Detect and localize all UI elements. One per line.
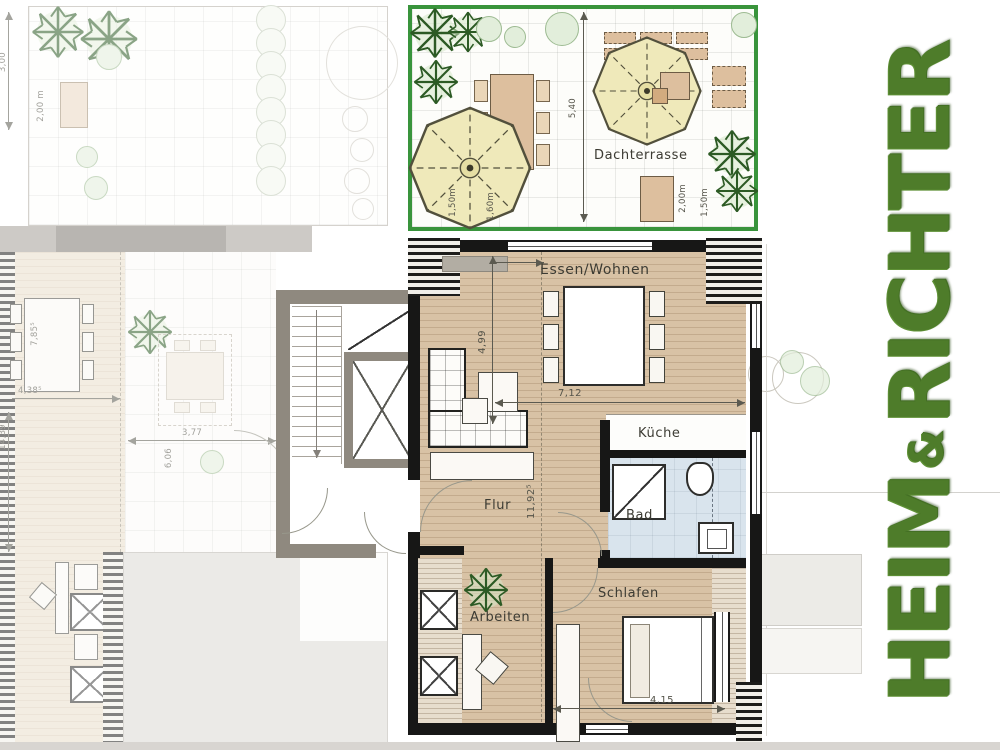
stair-flight-line <box>348 308 414 350</box>
wall <box>545 568 553 735</box>
room-kitchen-label: Küche <box>638 426 681 441</box>
sideboard <box>442 256 508 272</box>
dimension-line <box>583 12 584 222</box>
bush-icon <box>545 12 579 46</box>
hedge-row <box>256 12 286 196</box>
roof-eave <box>416 558 462 735</box>
dimension-line <box>12 398 120 399</box>
plant-icon <box>412 58 460 106</box>
chair <box>10 332 22 352</box>
chair <box>649 357 665 383</box>
shrub-icon <box>342 106 368 132</box>
bush-icon <box>76 146 98 168</box>
dimension-label: 11,92⁵ <box>526 484 537 519</box>
dimension-label: 5,40 <box>568 98 578 118</box>
floor-plan-canvas: 3,00 2,00 m 7,85⁵ 4,38⁵ 14,39 3,77 6 <box>0 0 1000 750</box>
wall <box>418 546 464 555</box>
dimension-line <box>553 708 725 709</box>
chair <box>174 402 190 413</box>
roof-eave-hatch <box>736 682 762 744</box>
context-roof <box>752 628 862 674</box>
chair <box>82 304 94 324</box>
chair <box>543 324 559 350</box>
dimension-label: 6,06 <box>164 448 174 468</box>
chair <box>474 80 488 102</box>
chair <box>82 332 94 352</box>
chair <box>82 360 94 380</box>
logo-richter: RICHTER <box>874 41 969 425</box>
dimension-line <box>495 402 745 403</box>
chair <box>536 144 550 166</box>
bush-icon <box>800 366 830 396</box>
room-office-label: Arbeiten <box>470 610 530 625</box>
wall <box>545 558 553 568</box>
sink-basin <box>707 529 727 549</box>
bottom-window <box>586 723 628 735</box>
planter-box <box>60 82 88 128</box>
dimension-label: 3,77 <box>182 428 202 438</box>
stairs-direction-arrow <box>316 310 317 458</box>
entrance-opening <box>408 480 420 532</box>
planter-box <box>640 176 674 222</box>
wardrobe <box>556 624 580 742</box>
context-roof <box>752 554 862 626</box>
cabinet <box>74 634 98 660</box>
roof-eave-hatch <box>103 552 123 750</box>
wall <box>610 450 746 458</box>
dimension-label: 1,50m <box>448 188 458 217</box>
roof-band-dark <box>56 226 226 252</box>
bush-icon <box>504 26 526 48</box>
bush-icon <box>780 350 804 374</box>
dimension-label: 4,38⁵ <box>18 386 42 396</box>
room-living-label: Essen/Wohnen <box>540 262 650 278</box>
parasol-icon <box>406 104 534 232</box>
bush-icon <box>200 450 224 474</box>
side-table <box>462 398 488 424</box>
wall <box>598 558 746 568</box>
chair <box>10 360 22 380</box>
chair <box>543 357 559 383</box>
logo-heim-richter: HEIM&RICHTER <box>874 41 969 703</box>
dimension-line <box>8 412 9 552</box>
side-table-small <box>652 88 668 104</box>
stairwell-wall <box>276 544 376 558</box>
terrace-label: Dachterrasse <box>594 148 688 163</box>
chair <box>10 304 22 324</box>
chair <box>536 80 550 102</box>
roof-eave-hatch <box>706 238 762 304</box>
dimension-label: 7,85⁵ <box>30 322 40 346</box>
side-table <box>712 66 746 86</box>
dimension-label: 4,15 <box>650 695 674 706</box>
dimension-extension <box>541 252 542 722</box>
dimension-extension <box>120 252 121 552</box>
dimension-label: 14,39 <box>0 424 8 450</box>
chair <box>174 340 190 351</box>
wall <box>628 723 746 735</box>
bush-icon <box>476 16 502 42</box>
stairwell-wall <box>276 290 422 304</box>
chair <box>200 340 216 351</box>
room-bath-label: Bad <box>626 508 653 523</box>
chair <box>536 112 550 134</box>
bed-headboard-line <box>701 618 702 702</box>
kitchen-window <box>750 432 762 514</box>
skylight-icon <box>420 590 458 630</box>
dimension-line <box>8 12 9 130</box>
elevator-x-icon <box>353 361 411 459</box>
bottom-strip <box>0 742 1000 750</box>
bush-icon <box>731 12 757 38</box>
living-window <box>750 302 762 348</box>
shrub-icon <box>350 138 374 162</box>
dimension-label: 4,99 <box>477 330 488 354</box>
dining-table <box>563 286 645 386</box>
shrub-icon <box>352 198 374 220</box>
chair <box>649 324 665 350</box>
bed-blanket <box>630 624 650 698</box>
terrace-table-faint <box>166 352 224 400</box>
room-hall-label: Flur <box>484 498 511 513</box>
chair <box>200 402 216 413</box>
dimension-label: 1,50m <box>700 188 710 217</box>
stairs <box>292 306 342 464</box>
logo-ampersand: & <box>899 424 953 474</box>
plant-icon <box>714 168 760 214</box>
bush-icon <box>96 44 122 70</box>
cabinet <box>74 564 98 590</box>
wall <box>750 348 762 432</box>
dimension-label: 3,00 <box>0 52 8 72</box>
entry-arrow <box>496 262 544 263</box>
dimension-label: 1,60m <box>486 192 496 221</box>
dimension-label: 2,00 m <box>36 90 46 122</box>
sink <box>698 522 734 554</box>
skylight-icon <box>420 656 458 696</box>
dimension-label: 2,00m <box>678 184 688 213</box>
chair <box>649 291 665 317</box>
hall-sideboard <box>430 452 534 480</box>
shrub-icon <box>344 168 370 194</box>
bedroom-window <box>714 612 730 702</box>
plant-icon <box>462 566 510 614</box>
dimension-label: 7,12 <box>558 388 582 399</box>
logo-heim: HEIM <box>874 474 969 703</box>
wall <box>600 420 610 512</box>
chair <box>543 291 559 317</box>
dimension-line <box>492 256 493 424</box>
flat-roof-cutout <box>300 553 387 641</box>
tree-icon <box>326 26 398 100</box>
wall <box>408 558 418 735</box>
toilet <box>686 462 714 496</box>
neighbor-desk <box>55 562 69 634</box>
terrace-window <box>508 240 652 252</box>
bush-icon <box>84 176 108 200</box>
bed <box>622 616 714 704</box>
room-bedroom-label: Schlafen <box>598 586 659 601</box>
side-table <box>712 90 746 108</box>
